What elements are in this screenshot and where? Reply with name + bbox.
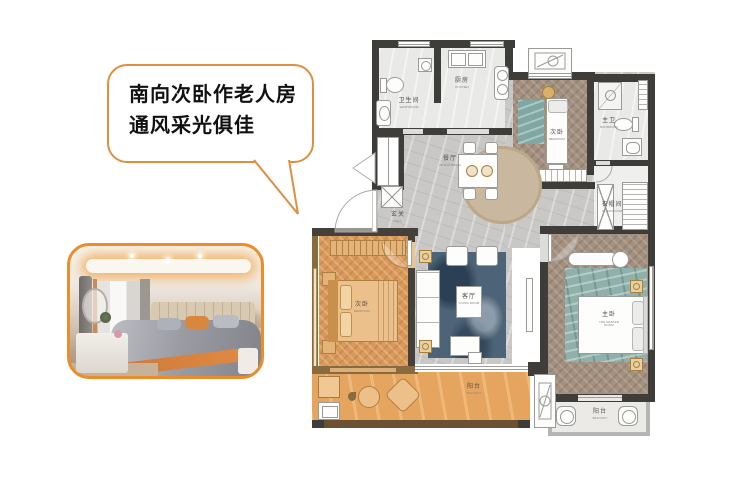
- sink-basin: [451, 53, 466, 66]
- washbasin-bowl: [626, 142, 640, 154]
- pillow: [340, 312, 352, 337]
- washer-drum: [421, 61, 431, 71]
- dining-chair: [463, 142, 476, 154]
- balcony-rail: [646, 402, 650, 436]
- window: [377, 137, 399, 186]
- wall: [518, 420, 530, 428]
- shoe-cabinet: [381, 186, 403, 208]
- door-arc: [335, 190, 377, 232]
- armchair: [446, 246, 468, 266]
- photo-pillow: [213, 315, 239, 328]
- entry-arrow: [352, 152, 376, 184]
- wall: [312, 420, 324, 428]
- nightstand: [630, 358, 643, 371]
- window: [470, 41, 504, 47]
- side-table: [419, 250, 432, 263]
- chair-cushion: [622, 410, 636, 424]
- photo-flowers: [114, 330, 122, 338]
- ac-symbol: [535, 375, 555, 427]
- ac-platform: [534, 374, 556, 428]
- pouf: [468, 352, 482, 364]
- pillow: [548, 100, 568, 113]
- bath-cabinet: [638, 80, 648, 110]
- page: 南向次卧作老人房 通风采光俱佳: [0, 0, 750, 485]
- table-decor: [481, 165, 493, 177]
- toilet-bowl: [386, 77, 404, 93]
- window: [313, 268, 317, 368]
- chair-cushion: [560, 410, 574, 424]
- headboard: [643, 296, 648, 354]
- round-table: [358, 386, 380, 408]
- door-arc: [551, 234, 578, 261]
- callout-text: 南向次卧作老人房 通风采光俱佳: [129, 80, 319, 142]
- side-table: [419, 340, 432, 353]
- balcony-rail: [312, 420, 530, 428]
- sliding-window: [415, 364, 528, 372]
- wall: [434, 43, 441, 103]
- callout-line-1: 南向次卧作老人房: [129, 80, 319, 111]
- photo-spotlight: [198, 254, 202, 258]
- tv-console: [526, 278, 533, 332]
- door-gap: [540, 234, 548, 262]
- photo-nightstand: [238, 348, 258, 374]
- callout-tail: [250, 159, 304, 217]
- wardrobe: [597, 184, 614, 230]
- nightstand: [322, 340, 336, 354]
- door-arc: [382, 242, 408, 268]
- pillow: [340, 285, 352, 310]
- bedroom-photo: [67, 243, 264, 379]
- balcony-rail: [548, 432, 650, 436]
- coffee-table: [456, 286, 482, 318]
- sliding-door: [578, 395, 622, 401]
- blanket-fold: [378, 281, 397, 341]
- photo-pillow-orange: [185, 316, 209, 329]
- photo-spotlight: [130, 254, 134, 258]
- callout-line-2: 通风采光俱佳: [129, 111, 319, 142]
- nightstand: [630, 280, 643, 293]
- table-decor: [466, 165, 478, 177]
- door-gap: [403, 129, 423, 134]
- floor-plan: 卫生间WASHROOM 厨房KITCHEN 次卧BEDROOM 主卫BATHRO…: [310, 14, 668, 446]
- door-gap: [447, 129, 489, 134]
- sofa: [416, 270, 440, 348]
- balcony-cabinet: [318, 376, 340, 398]
- toilet: [632, 117, 639, 132]
- dining-chair: [485, 188, 498, 200]
- window: [649, 266, 654, 350]
- dining-chair: [463, 188, 476, 200]
- window: [398, 41, 430, 47]
- dining-chair: [485, 142, 498, 154]
- wardrobe: [622, 182, 648, 230]
- photo-pillow: [157, 318, 181, 330]
- wall: [587, 79, 594, 175]
- photo-plant: [100, 312, 111, 323]
- ac-platform: [528, 48, 572, 74]
- sink-basin: [468, 53, 483, 66]
- burner: [497, 84, 508, 95]
- armchair: [476, 246, 498, 266]
- ac-symbol: [529, 49, 571, 73]
- toilet-bowl: [614, 118, 633, 131]
- door-arc: [596, 166, 612, 182]
- shower-door: [598, 82, 622, 110]
- photo-vanity: [76, 333, 128, 373]
- plant: [348, 392, 356, 401]
- photo-spotlight: [166, 258, 170, 262]
- bench-cushion: [612, 251, 629, 268]
- door-gap: [596, 161, 610, 165]
- laundry-box-inner: [322, 406, 338, 418]
- window: [330, 368, 396, 372]
- headboard: [328, 280, 338, 342]
- washbasin-bowl: [379, 106, 390, 121]
- burner: [497, 70, 508, 81]
- stool: [542, 86, 555, 99]
- rug: [518, 100, 544, 144]
